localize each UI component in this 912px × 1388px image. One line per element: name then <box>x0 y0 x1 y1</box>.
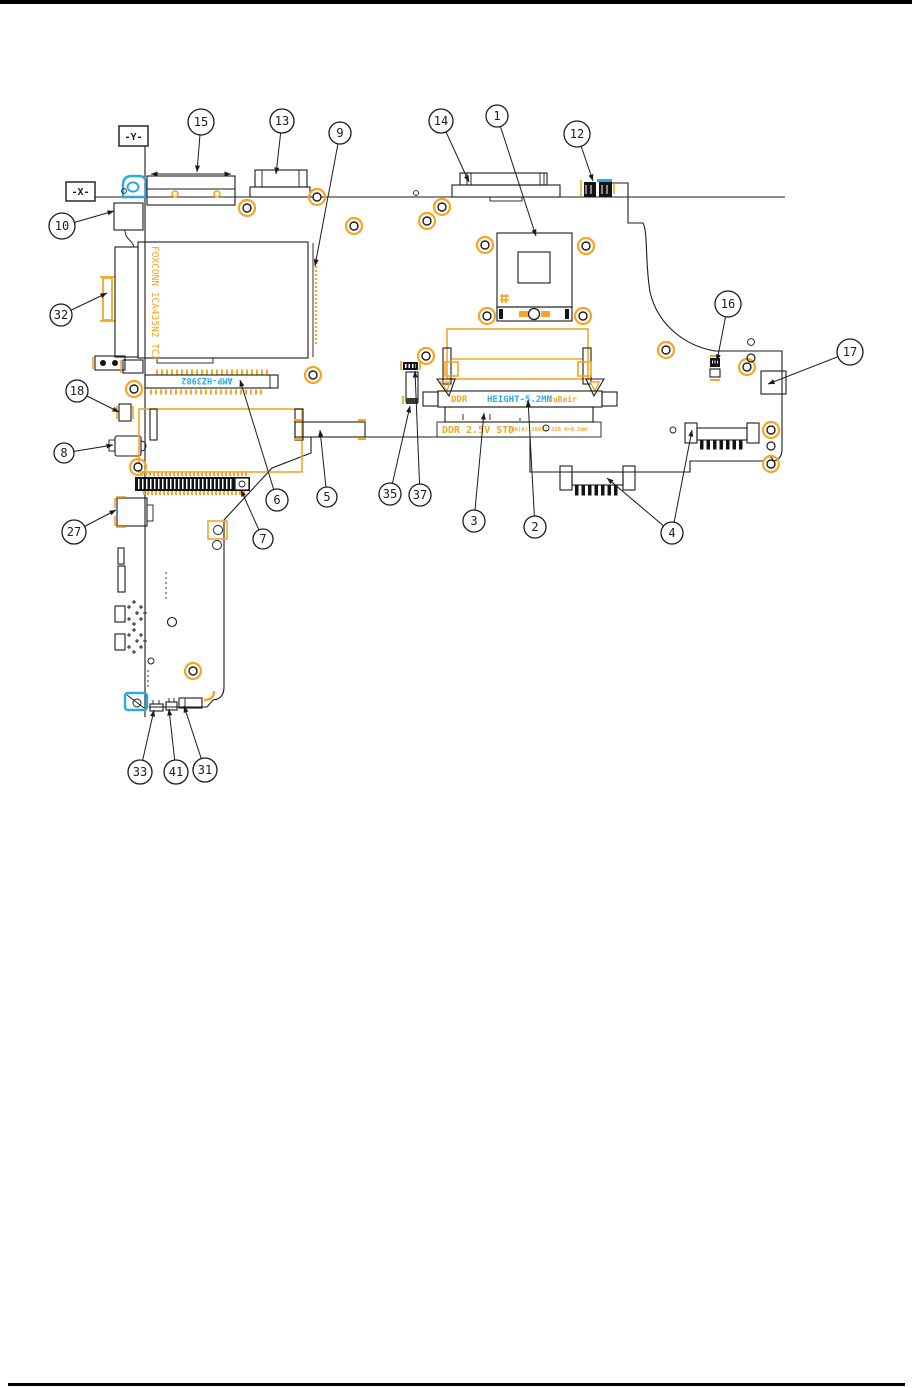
ddr-socket: DDR HEIGHT-5.2MM zuBair DDR 2.5V STD 200… <box>423 329 617 437</box>
manual-page: -Y- -X- <box>0 0 912 1388</box>
callout-number: 10 <box>55 219 69 233</box>
hole <box>214 526 223 535</box>
callout-35: 35 <box>379 406 410 505</box>
hole <box>670 427 676 433</box>
callout-13: 13 <box>270 109 294 174</box>
callout-number: 35 <box>383 487 397 501</box>
screw-hole <box>422 352 430 360</box>
edge-part <box>118 566 125 592</box>
connector-10 <box>114 203 143 247</box>
side-module <box>115 247 138 357</box>
callout-number: 37 <box>413 488 427 502</box>
screw-hole <box>313 193 321 201</box>
screw-hole <box>582 242 590 250</box>
solder-pad <box>127 645 131 649</box>
y-axis-label: -Y- <box>124 132 142 143</box>
hole <box>213 541 222 550</box>
ddr-right-text: zuBair <box>548 394 577 404</box>
screw-hole <box>350 222 358 230</box>
screw-hole <box>767 460 775 468</box>
connector-4-middle <box>560 466 635 490</box>
solder-pad <box>139 617 143 621</box>
callout-5: 5 <box>317 430 337 507</box>
callout-41: 41 <box>164 709 188 784</box>
ddr-label-text: DDR <box>451 395 468 405</box>
connector-33 <box>150 700 163 711</box>
callout-number: 17 <box>843 345 857 359</box>
callout-37: 37 <box>409 371 431 506</box>
callout-1: 1 <box>486 105 536 236</box>
connector-32 <box>100 277 115 321</box>
solder-pad <box>135 639 139 643</box>
callout-number: 14 <box>434 114 448 128</box>
callout-6: 6 <box>240 380 288 511</box>
component-35-37 <box>401 361 420 404</box>
hole <box>748 339 755 346</box>
small-hole <box>414 191 419 196</box>
solder-pad-cluster <box>127 600 147 654</box>
jack-27 <box>115 497 153 527</box>
connector-12 <box>581 179 614 197</box>
ddr-card-outline <box>447 329 588 379</box>
hole <box>148 658 154 664</box>
cam-screw <box>529 309 540 320</box>
solder-pad <box>132 628 136 632</box>
minipci-card-outline <box>139 409 302 472</box>
connector-14 <box>452 173 560 201</box>
callout-number: 31 <box>198 763 212 777</box>
connector-41 <box>166 698 177 710</box>
screw-hole <box>189 667 197 675</box>
callout-31: 31 <box>184 706 217 782</box>
callout-14: 14 <box>429 109 469 182</box>
cam-wing <box>541 311 550 317</box>
callout-2: 2 <box>524 400 546 538</box>
callout-12: 12 <box>564 121 593 181</box>
screw-hole <box>662 346 670 354</box>
callout-number: 2 <box>531 520 538 534</box>
screw-hole <box>134 463 142 471</box>
solder-pad <box>139 645 143 649</box>
screw-hole <box>579 312 587 320</box>
page-bottom-rule <box>8 1383 905 1386</box>
corner-connector-hole <box>128 182 139 191</box>
callout-15: 15 <box>188 109 214 172</box>
callout-number: 4 <box>668 526 675 540</box>
callout-number: 33 <box>133 765 147 779</box>
screw-hole <box>767 426 775 434</box>
solder-pad <box>143 639 147 643</box>
callout-leader <box>497 116 536 236</box>
connector-13 <box>250 170 310 197</box>
ddr-height-text: HEIGHT-5.2MM <box>487 395 553 405</box>
component-near-edge <box>121 360 143 373</box>
callout-number: 15 <box>194 115 208 129</box>
screw-hole <box>243 204 251 212</box>
corner-connector-highlight <box>123 176 146 197</box>
callout-10: 10 <box>49 211 114 239</box>
solder-pad <box>127 633 131 637</box>
connector-5 <box>294 420 366 439</box>
screw-hole <box>743 363 751 371</box>
pin1-mark <box>500 294 509 303</box>
x-axis-label: -X- <box>71 187 89 198</box>
ddr-spec-text: DDR 2.5V STD <box>442 425 514 436</box>
callout-number: 7 <box>259 532 266 546</box>
bottom-column <box>115 548 202 711</box>
solder-pad <box>132 622 136 626</box>
callout-number: 27 <box>67 525 81 539</box>
solder-pad <box>132 650 136 654</box>
heatsink-marking-text: FOXCONN 1CA435N2 TC2 <box>149 246 160 360</box>
cam-wing <box>519 311 528 317</box>
board-corner-highlight <box>204 691 214 700</box>
connector-15 <box>147 174 235 205</box>
connector-18 <box>117 404 133 421</box>
callout-4: 4 <box>607 430 692 544</box>
callout-number: 5 <box>323 490 330 504</box>
board-outline <box>94 146 785 717</box>
component-16 <box>710 356 720 380</box>
callout-8: 8 <box>54 443 113 463</box>
screw-hole <box>483 312 491 320</box>
connector-12-highlight <box>597 179 612 182</box>
docking-marking-text: AMP-HZ3982 <box>181 375 232 385</box>
edge-part <box>115 606 125 622</box>
motherboard-diagram: -Y- -X- <box>0 0 912 830</box>
callout-leader <box>390 406 410 494</box>
edge-part <box>118 548 124 564</box>
board-edge <box>149 183 782 707</box>
screw-hole <box>481 241 489 249</box>
solder-pad <box>139 633 143 637</box>
hole <box>767 442 775 450</box>
solder-pad <box>132 600 136 604</box>
callout-number: 13 <box>275 114 289 128</box>
callout-number: 12 <box>570 127 584 141</box>
callout-leader <box>528 400 535 527</box>
jack-8 <box>109 436 146 456</box>
corner-connector-highlight-bottom <box>125 693 147 710</box>
heatsink-module: FOXCONN 1CA435N2 TC2 <box>138 242 316 363</box>
callout-leader <box>672 430 692 533</box>
callout-number: 1 <box>493 109 500 123</box>
solder-pad <box>127 605 131 609</box>
screw-hole <box>423 217 431 225</box>
solder-pad <box>135 611 139 615</box>
axis-labels: -Y- -X- <box>66 126 148 201</box>
callout-number: 6 <box>273 493 280 507</box>
solder-pad <box>143 611 147 615</box>
top-edge-connectors <box>122 170 614 205</box>
screw-hole <box>309 371 317 379</box>
callout-number: 16 <box>721 297 735 311</box>
minipci-socket <box>135 474 250 493</box>
screw-hole <box>130 385 138 393</box>
hole <box>168 618 177 627</box>
callout-number: 8 <box>60 446 67 460</box>
callout-33: 33 <box>128 710 154 784</box>
edge-part <box>115 634 125 650</box>
callout-leader <box>607 478 672 533</box>
solder-pad <box>139 605 143 609</box>
cpu-socket <box>497 233 572 321</box>
callout-number: 18 <box>70 384 84 398</box>
docking-connector: AMP-HZ3982 <box>145 372 278 392</box>
callout-18: 18 <box>66 380 119 412</box>
callout-number: 9 <box>336 126 343 140</box>
callout-number: 32 <box>54 308 68 322</box>
solder-pad <box>127 617 131 621</box>
callout-27: 27 <box>62 510 116 544</box>
minipci-area <box>135 409 303 550</box>
callout-number: 3 <box>470 514 477 528</box>
callout-number: 41 <box>169 765 183 779</box>
screw-hole <box>438 203 446 211</box>
callout-32: 32 <box>50 293 107 326</box>
